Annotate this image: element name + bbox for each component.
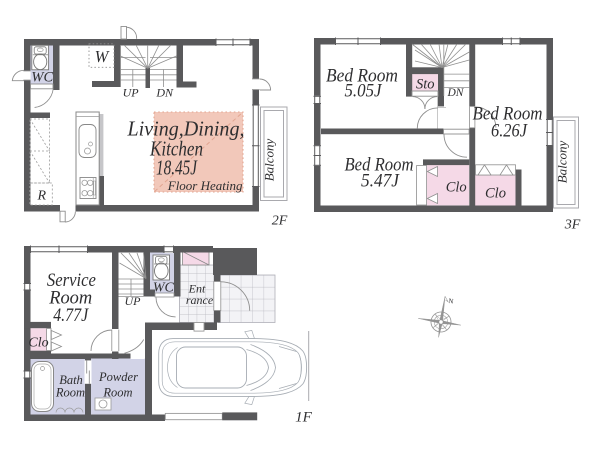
svg-text:4.77J: 4.77J — [53, 305, 89, 326]
svg-text:18.45J: 18.45J — [156, 156, 198, 180]
svg-text:6.26J: 6.26J — [491, 121, 528, 142]
svg-text:Room: Room — [102, 386, 132, 400]
svg-text:UP: UP — [123, 86, 140, 100]
svg-text:UP: UP — [125, 294, 142, 308]
svg-text:DN: DN — [155, 86, 174, 100]
svg-text:1F: 1F — [295, 410, 313, 426]
svg-text:Clo: Clo — [446, 180, 467, 196]
svg-text:Sto: Sto — [416, 77, 435, 93]
svg-text:rance: rance — [186, 293, 214, 307]
svg-text:2F: 2F — [272, 214, 288, 229]
svg-text:3F: 3F — [564, 218, 581, 233]
svg-text:Room: Room — [55, 386, 85, 400]
svg-text:W: W — [95, 47, 110, 66]
svg-text:Clo: Clo — [28, 336, 48, 351]
svg-text:Clo: Clo — [485, 186, 506, 202]
svg-text:WC: WC — [153, 281, 175, 296]
svg-text:DN: DN — [447, 87, 465, 99]
svg-text:Powder: Powder — [98, 370, 138, 384]
svg-text:5.47J: 5.47J — [361, 171, 400, 192]
svg-text:Floor Heating: Floor Heating — [167, 178, 243, 193]
svg-text:R: R — [37, 189, 47, 204]
svg-text:Balcony: Balcony — [555, 140, 570, 183]
svg-text:Balcony: Balcony — [262, 138, 277, 181]
svg-text:WC: WC — [31, 70, 53, 86]
svg-text:5.05J: 5.05J — [345, 81, 383, 102]
